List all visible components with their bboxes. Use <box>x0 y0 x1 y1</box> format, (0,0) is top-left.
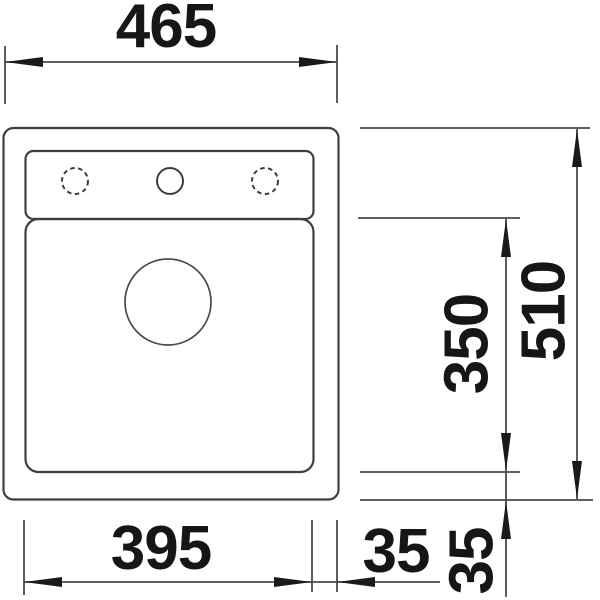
arrow-up-icon <box>572 129 582 167</box>
arrow-left-icon <box>5 57 43 67</box>
dim-label-rim-right: 35 <box>363 517 430 586</box>
arrow-down-icon <box>501 433 511 471</box>
sink-outline <box>4 128 339 500</box>
dim-label-overall-depth: 510 <box>510 261 579 361</box>
tap-hole-left-optional-icon <box>62 168 88 194</box>
arrow-up-icon <box>501 219 511 257</box>
arrow-down-icon <box>572 461 582 499</box>
sink-outer-edge <box>4 128 339 500</box>
drawing-canvas: 465 395 35 350 510 35 <box>0 0 600 600</box>
arrow-left-icon <box>24 577 62 587</box>
sink-dimension-drawing: 465 395 35 350 510 35 <box>0 0 600 600</box>
arrow-right-icon <box>299 57 337 67</box>
drain-hole-icon <box>125 259 211 345</box>
dimension-labels: 465 395 35 350 510 35 <box>111 0 579 594</box>
tap-holes <box>62 168 278 194</box>
tap-hole-center-icon <box>157 168 183 194</box>
sink-tap-ledge <box>26 151 314 219</box>
dim-label-rim-bottom: 35 <box>438 528 507 595</box>
dim-label-overall-width: 465 <box>116 0 216 61</box>
arrow-right-icon <box>274 577 312 587</box>
dim-label-bowl-width: 395 <box>111 514 211 583</box>
dim-label-bowl-depth: 350 <box>433 294 502 394</box>
tap-hole-right-optional-icon <box>252 168 278 194</box>
